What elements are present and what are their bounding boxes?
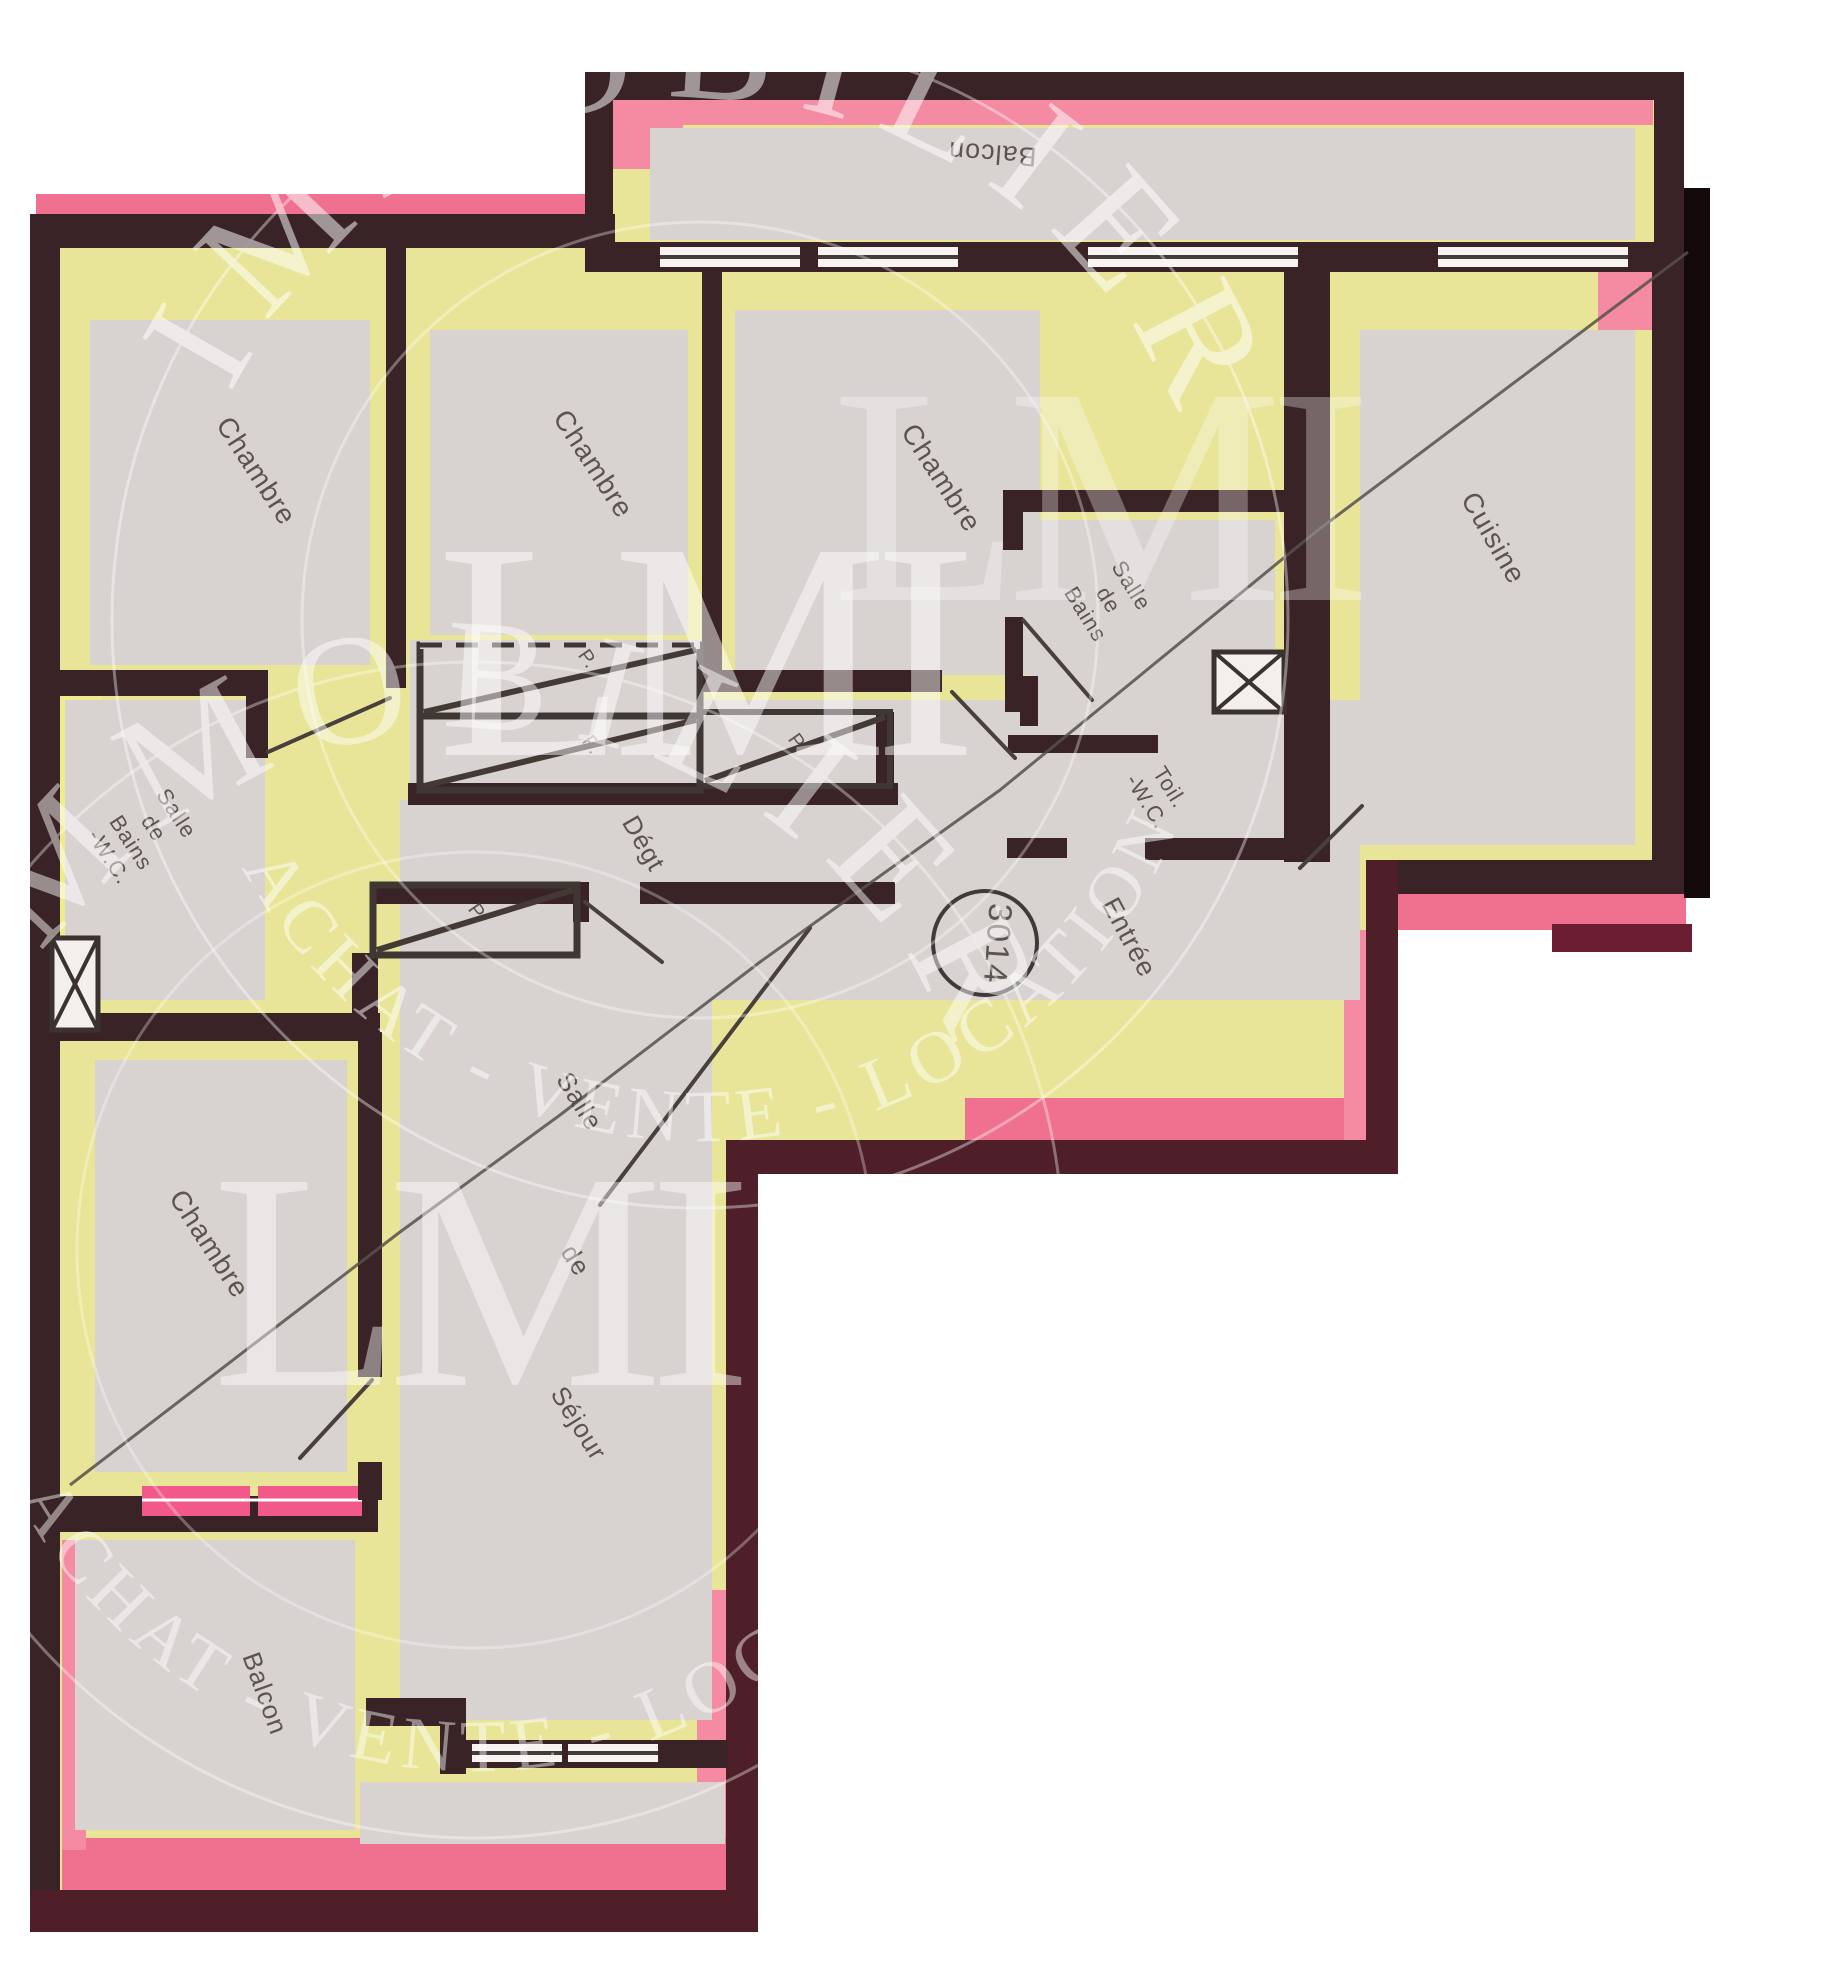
unit-number: 3014 xyxy=(976,902,1020,986)
shaft-box-center xyxy=(1214,652,1284,712)
room-label-balcony-top: Balcon xyxy=(947,135,1038,172)
shaft-box-left xyxy=(52,938,98,1030)
floor-plan: Balcon Chambre Chambre Chambre Cuisine S… xyxy=(0,0,1848,1980)
